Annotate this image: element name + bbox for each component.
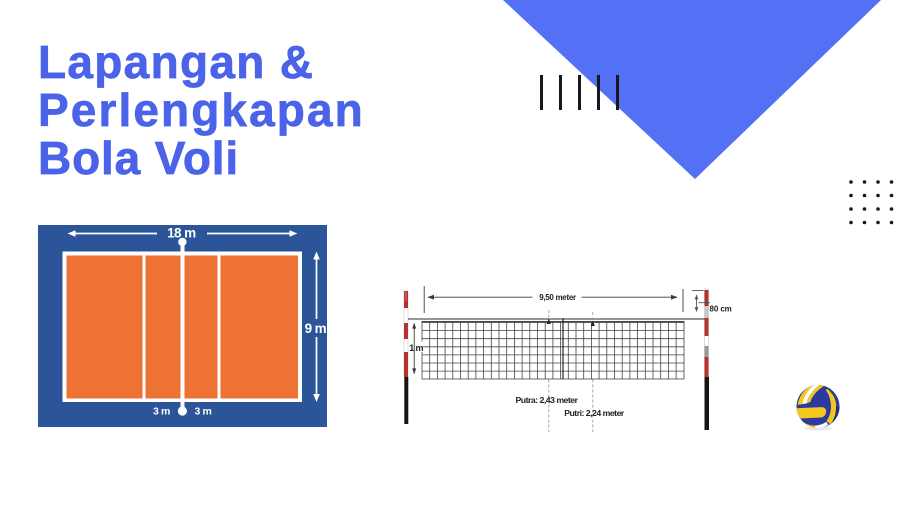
svg-text:18 m: 18 m [167,226,196,241]
svg-text:3 m: 3 m [153,406,170,418]
svg-text:m: m [416,343,424,353]
svg-text:80 cm: 80 cm [710,305,732,314]
svg-text:1: 1 [409,343,414,353]
svg-text:9 m: 9 m [305,321,327,336]
svg-text:Putri: 2,24 meter: Putri: 2,24 meter [564,408,625,418]
svg-text:3 m: 3 m [195,406,212,418]
svg-text:9,50 meter: 9,50 meter [539,293,576,302]
svg-text:Putra: 2,43 meter: Putra: 2,43 meter [516,395,579,405]
